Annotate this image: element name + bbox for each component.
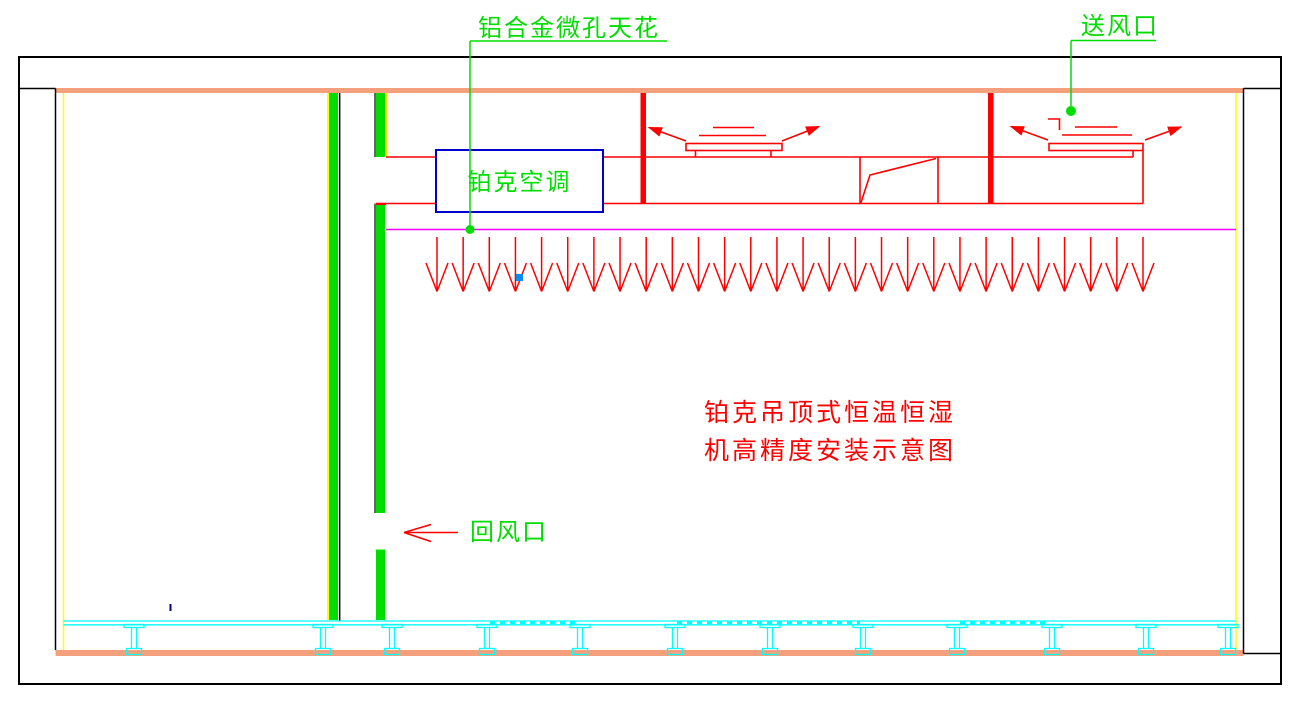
column-b-upper [376, 93, 385, 157]
return-air-arrow [404, 525, 458, 542]
pedestal-stem [390, 628, 395, 649]
diffuser-right [1011, 119, 1181, 151]
airflow-arrow [871, 237, 893, 292]
airflow-arrow [426, 237, 448, 292]
airflow-arrow [1001, 237, 1023, 292]
cad-canvas: 铝合金微孔天花 送风口 铂克空调 回风口 铂克吊顶式恒温恒湿 机高精度安装示意图 [0, 0, 1300, 705]
fire-damper-bar [988, 93, 994, 204]
column-b-middle [376, 204, 385, 514]
diffuser-neck-lines [696, 151, 772, 158]
airflow-out-right-arrow [782, 127, 819, 142]
airflow-arrow [531, 237, 553, 292]
caption-line-2: 机高精度安装示意图 [704, 437, 956, 465]
damper-blade [861, 159, 936, 203]
wall-lines [19, 89, 1281, 654]
pedestal-head [570, 625, 590, 628]
airflow-out-right-arrow [1145, 127, 1181, 140]
return-air-label: 回风口 [470, 519, 548, 546]
supply-leader-dot [1066, 106, 1076, 116]
ceiling-slab [56, 88, 1244, 93]
pedestal-stem [673, 628, 678, 649]
pedestal-head [382, 625, 402, 628]
pedestal-head [760, 625, 780, 628]
airflow-arrow [583, 237, 605, 292]
partition-columns [328, 93, 386, 621]
airflow-arrow [1027, 237, 1049, 292]
floor-slab [56, 650, 1244, 656]
hvac-installation-drawing: 铝合金微孔天花 送风口 铂克空调 回风口 铂克吊顶式恒温恒湿 机高精度安装示意图 [0, 0, 1300, 705]
pedestal-stem [578, 628, 583, 649]
airflow-out-left-arrow [1011, 127, 1048, 141]
raised-floor [64, 621, 1239, 655]
pedestal-stem [321, 628, 326, 649]
pedestal-stem [1226, 628, 1231, 649]
diffuser-corner-mark [1048, 119, 1060, 130]
pedestal-head [313, 625, 333, 628]
wall-finish-lines [64, 93, 1237, 650]
pedestal-stem [955, 628, 960, 649]
airflow-arrow [975, 237, 997, 292]
slabs [56, 88, 1244, 656]
airflow-arrow [557, 237, 579, 292]
pedestal-stem [132, 628, 137, 649]
pedestal-head [477, 625, 497, 628]
supply-air-label: 送风口 [1081, 13, 1159, 40]
airflow-arrow [1132, 237, 1154, 292]
airflow-arrow [1054, 237, 1076, 292]
column-b-lower [376, 550, 385, 621]
diffuser-louver-lines [1062, 127, 1132, 135]
supply-duct-lines [603, 151, 1143, 204]
diffuser-left [649, 127, 819, 158]
diffuser-louver-lines [699, 128, 766, 136]
airflow-arrow [1080, 237, 1102, 292]
pedestal-stem [485, 628, 490, 649]
airflow-arrow [818, 237, 840, 292]
ac-unit-label: 铂克空调 [468, 169, 572, 196]
pedestal-stem [861, 628, 866, 649]
right-wall-line [1244, 89, 1282, 654]
pedestal-head [947, 625, 967, 628]
pedestal-head [1136, 625, 1156, 628]
supply-leader [1071, 41, 1156, 107]
airflow-arrow [949, 237, 971, 292]
airflow-arrow [452, 237, 474, 292]
airflow-arrow [792, 237, 814, 292]
pedestal-stem [1050, 628, 1055, 649]
left-wall-line [19, 89, 56, 651]
airflow-out-left-arrow [649, 128, 686, 142]
damper-frame-lines [860, 158, 938, 204]
airflow-arrow [923, 237, 945, 292]
airflow-arrow [504, 237, 526, 292]
return-duct-lines [376, 157, 436, 204]
airflow-arrow [714, 237, 736, 292]
caption-line-1: 铂克吊顶式恒温恒湿 [704, 399, 956, 427]
airflow-arrow [635, 237, 657, 292]
airflow-arrow [609, 237, 631, 292]
pedestal-head [1218, 625, 1238, 628]
ceiling-leader-dot [466, 225, 475, 234]
airflow-arrow [740, 237, 762, 292]
diffuser-face [1049, 144, 1143, 151]
pedestal-head [124, 625, 144, 628]
ceiling-label: 铝合金微孔天花 [478, 15, 660, 42]
airflow-arrow [478, 237, 500, 292]
pedestal-head [665, 625, 685, 628]
pedestal-head [1042, 625, 1062, 628]
pedestal-head [853, 625, 873, 628]
column-a [329, 93, 338, 620]
supply-airflow-arrows [426, 237, 1154, 292]
airflow-arrow [1106, 237, 1128, 292]
pedestal-stem [768, 628, 773, 649]
blue-square-marker [516, 274, 523, 281]
airflow-arrow [897, 237, 919, 292]
diffuser-face [686, 144, 782, 151]
airflow-arrow [766, 237, 788, 292]
pedestal-stem [1144, 628, 1149, 649]
airflow-arrow [687, 237, 709, 292]
airflow-arrow [844, 237, 866, 292]
airflow-arrow [661, 237, 683, 292]
fire-damper-bar [641, 93, 647, 204]
